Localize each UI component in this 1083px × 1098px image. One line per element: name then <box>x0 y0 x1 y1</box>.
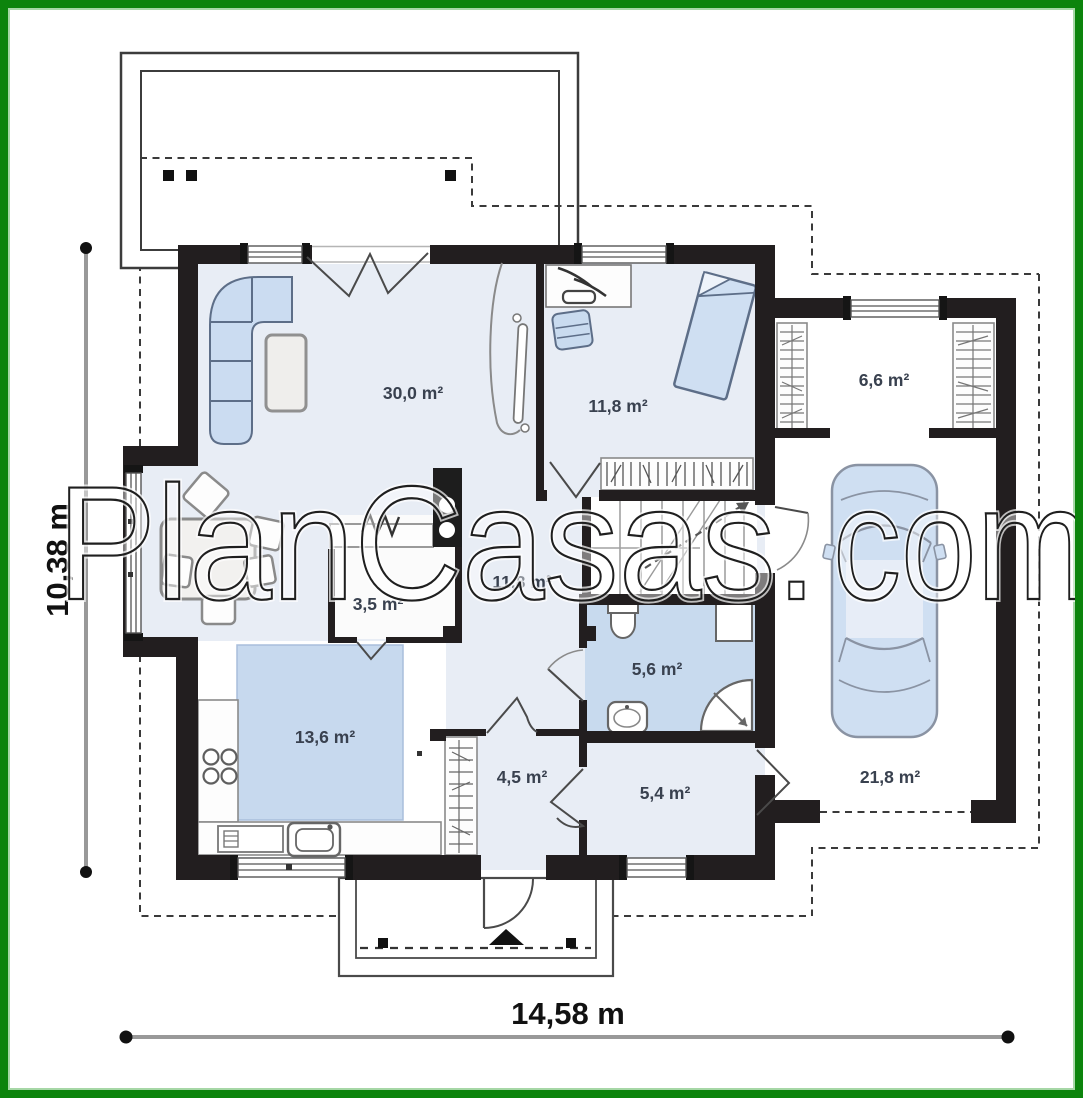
svg-text:PlanCasas.: PlanCasas. <box>57 453 817 634</box>
svg-text:13,6 m²: 13,6 m² <box>295 727 355 747</box>
svg-text:21,8 m²: 21,8 m² <box>860 767 920 787</box>
svg-text:5,4 m²: 5,4 m² <box>640 783 691 803</box>
svg-text:4,5 m²: 4,5 m² <box>497 767 548 787</box>
svg-text:30,0 m²: 30,0 m² <box>383 383 443 403</box>
svg-text:5,6 m²: 5,6 m² <box>632 659 683 679</box>
svg-text:com: com <box>833 453 1083 634</box>
svg-text:6,6 m²: 6,6 m² <box>859 370 910 390</box>
svg-text:11,8 m²: 11,8 m² <box>588 396 648 416</box>
svg-text:14,58 m: 14,58 m <box>511 996 625 1031</box>
